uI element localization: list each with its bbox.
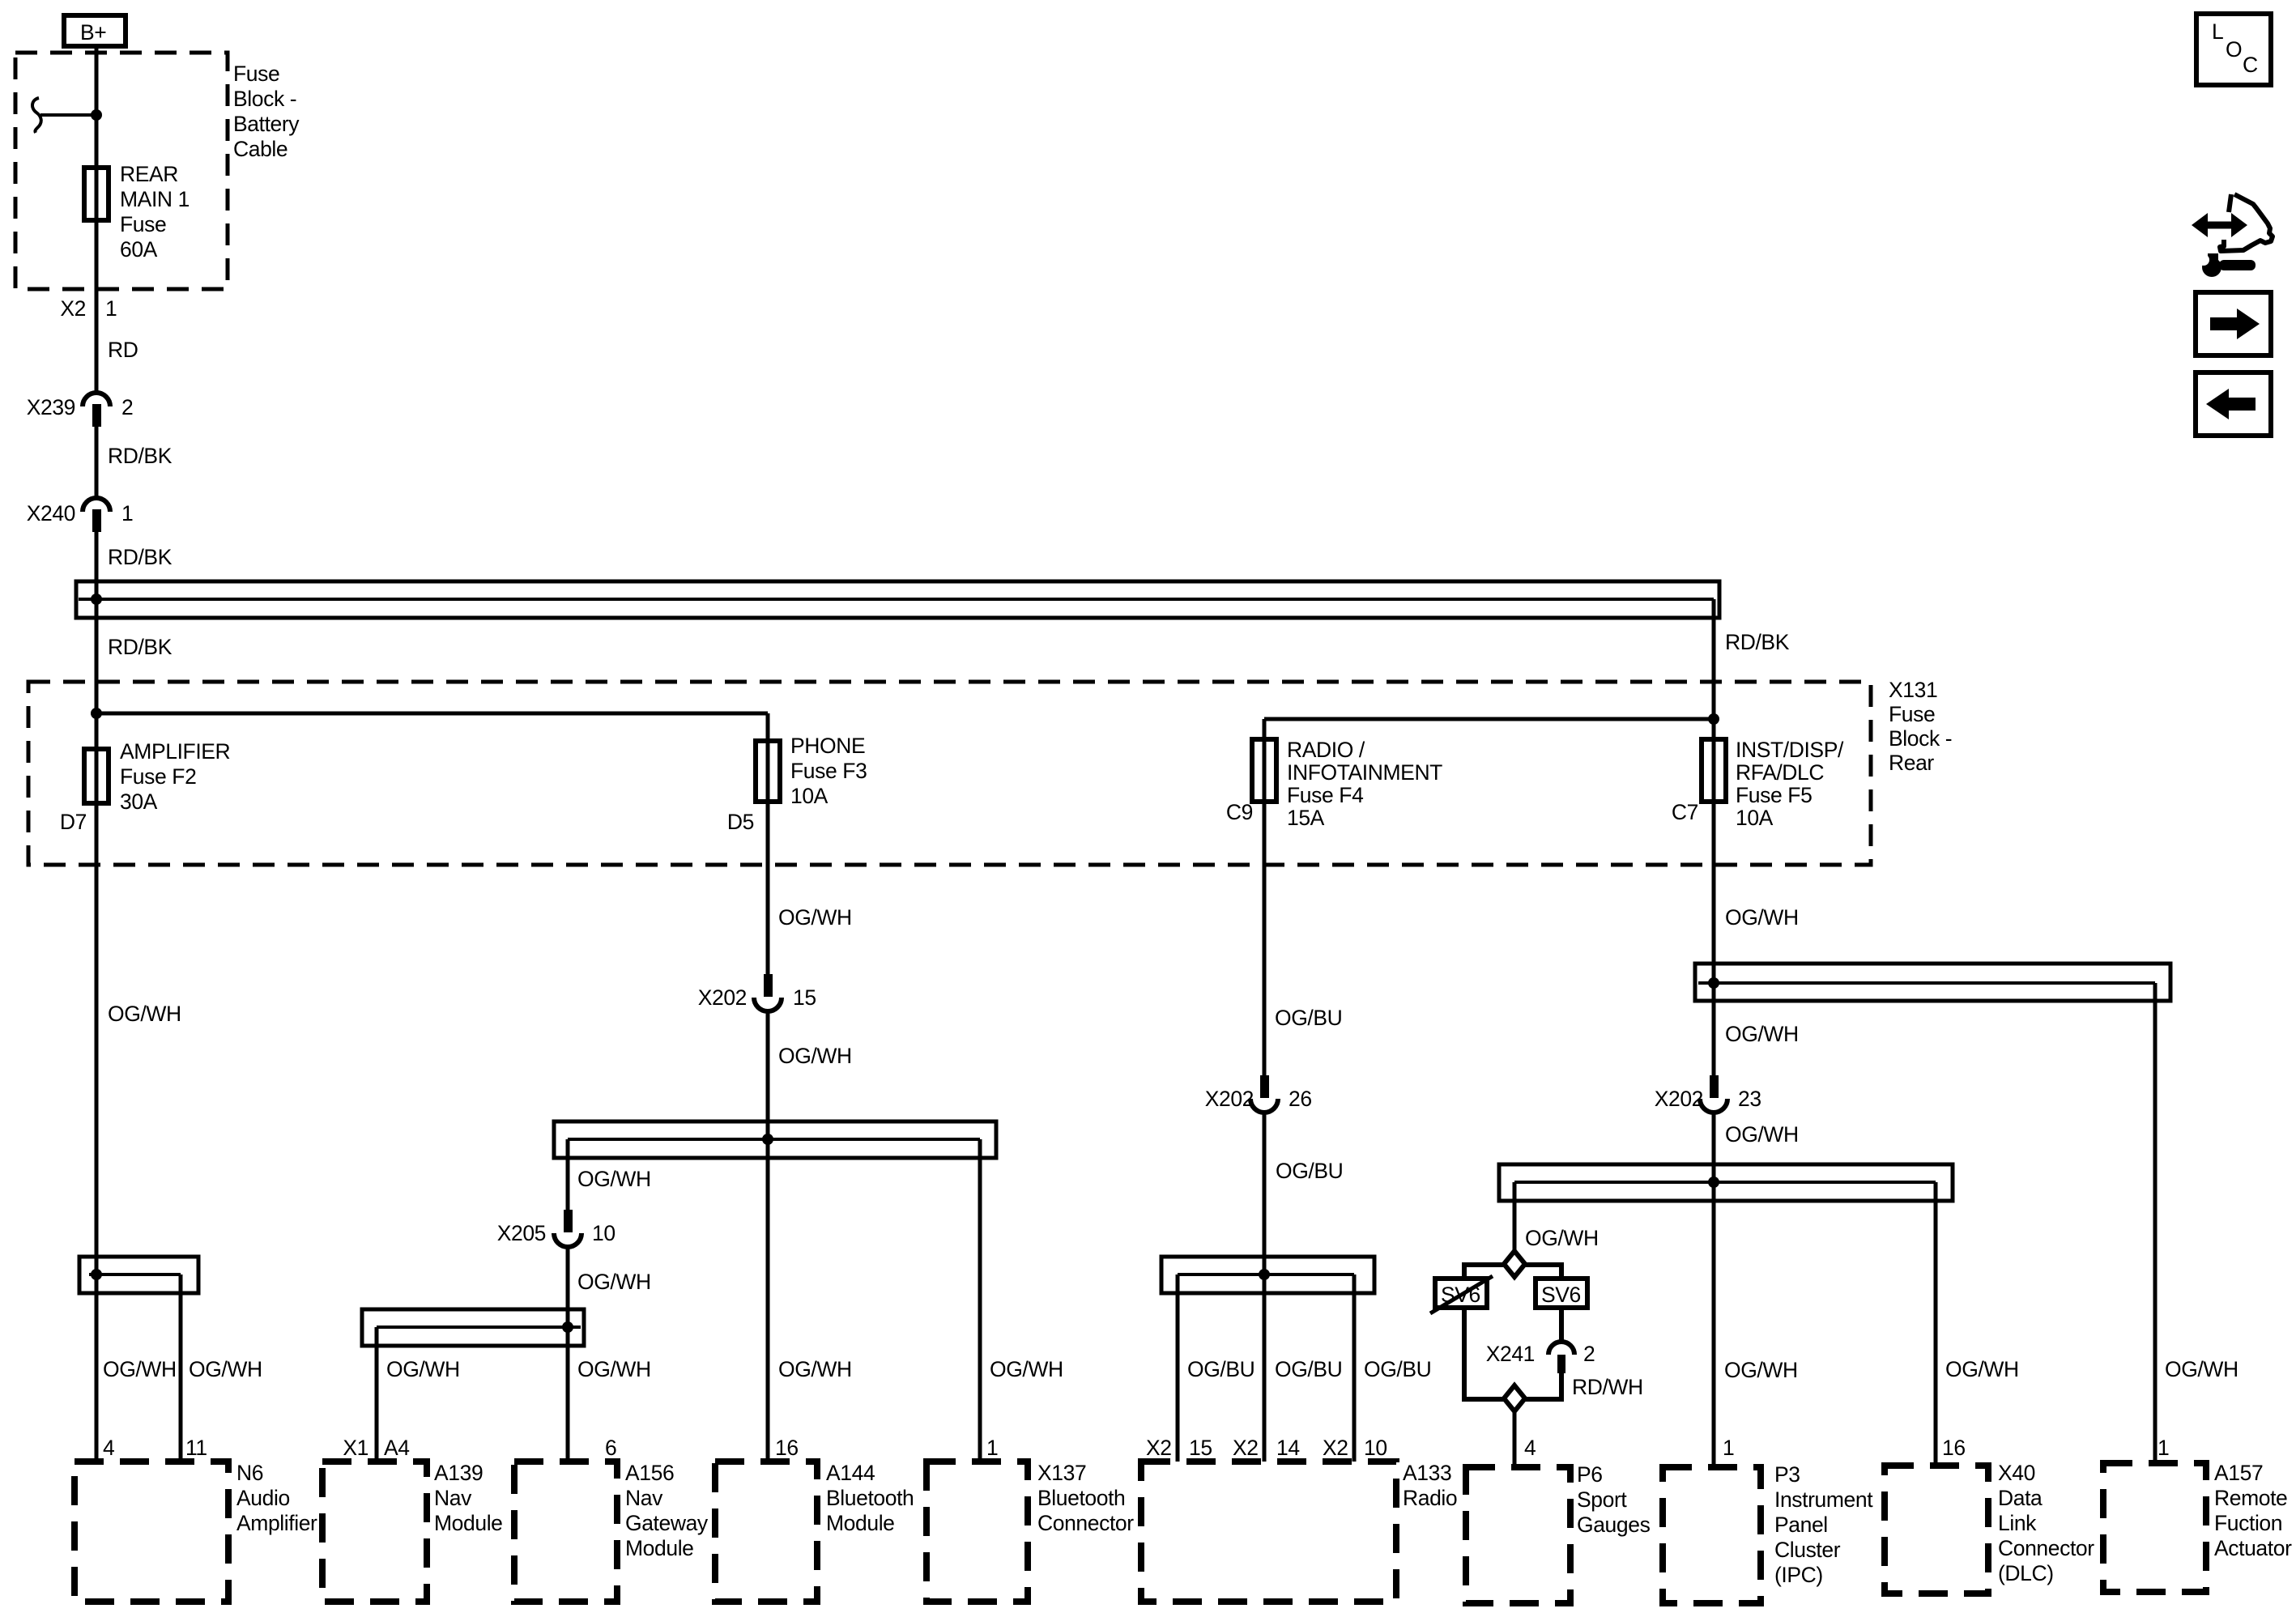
svg-text:4: 4: [1524, 1436, 1536, 1460]
svg-text:X2: X2: [60, 296, 86, 321]
svg-text:OG/WH: OG/WH: [103, 1357, 177, 1381]
svg-text:(DLC): (DLC): [1998, 1561, 2054, 1585]
svg-text:Fuction: Fuction: [2214, 1511, 2282, 1535]
svg-text:D7: D7: [60, 810, 87, 834]
svg-text:P6: P6: [1577, 1462, 1603, 1487]
svg-text:INST/DISP/: INST/DISP/: [1736, 738, 1844, 762]
svg-text:Gateway: Gateway: [625, 1511, 709, 1535]
svg-text:Audio: Audio: [236, 1486, 290, 1510]
svg-text:X137: X137: [1037, 1461, 1086, 1485]
svg-text:Fuse F4: Fuse F4: [1287, 783, 1363, 807]
svg-text:OG/WH: OG/WH: [577, 1167, 651, 1191]
svg-text:RD: RD: [108, 338, 138, 362]
svg-text:Block -: Block -: [1889, 726, 1952, 751]
svg-text:X2: X2: [1323, 1436, 1348, 1460]
svg-text:Module: Module: [625, 1536, 694, 1560]
svg-text:60A: 60A: [120, 237, 158, 262]
svg-text:OG/WH: OG/WH: [990, 1357, 1063, 1381]
svg-text:OG/WH: OG/WH: [1525, 1226, 1599, 1250]
svg-text:OG/WH: OG/WH: [1725, 1022, 1799, 1046]
svg-text:10: 10: [1364, 1436, 1387, 1460]
svg-text:X241: X241: [1486, 1342, 1535, 1366]
svg-text:(IPC): (IPC): [1774, 1563, 1823, 1587]
svg-text:MAIN 1: MAIN 1: [120, 187, 190, 211]
svg-text:OG/WH: OG/WH: [1724, 1358, 1798, 1382]
svg-text:OG/BU: OG/BU: [1187, 1357, 1254, 1381]
svg-text:X205: X205: [497, 1221, 546, 1245]
svg-text:Fuse F2: Fuse F2: [120, 764, 196, 789]
svg-text:2: 2: [1583, 1342, 1595, 1366]
svg-text:Radio: Radio: [1403, 1486, 1457, 1510]
svg-text:SV6: SV6: [1541, 1283, 1581, 1307]
svg-text:1: 1: [986, 1436, 998, 1460]
svg-text:Bluetooth: Bluetooth: [1037, 1486, 1125, 1510]
svg-text:X239: X239: [27, 395, 75, 419]
svg-text:OG/WH: OG/WH: [778, 1044, 852, 1068]
svg-text:Panel: Panel: [1774, 1513, 1828, 1537]
svg-text:OG/BU: OG/BU: [1364, 1357, 1431, 1381]
svg-text:10A: 10A: [790, 784, 829, 808]
svg-text:1: 1: [105, 296, 117, 321]
svg-text:OG/WH: OG/WH: [1945, 1357, 2019, 1381]
svg-text:16: 16: [775, 1436, 799, 1460]
svg-text:X131: X131: [1889, 678, 1937, 702]
svg-text:Rear: Rear: [1889, 751, 1934, 775]
svg-text:INFOTAINMENT: INFOTAINMENT: [1287, 760, 1442, 785]
svg-text:23: 23: [1738, 1087, 1761, 1111]
svg-text:RD/BK: RD/BK: [108, 635, 173, 659]
svg-text:15: 15: [793, 985, 816, 1010]
svg-text:Link: Link: [1998, 1511, 2037, 1535]
svg-text:X2: X2: [1233, 1436, 1259, 1460]
svg-text:Nav: Nav: [434, 1486, 472, 1510]
svg-text:Gauges: Gauges: [1577, 1513, 1651, 1537]
svg-text:A157: A157: [2214, 1461, 2263, 1485]
svg-text:1: 1: [1723, 1436, 1734, 1460]
svg-text:A133: A133: [1403, 1461, 1451, 1485]
svg-text:N6: N6: [236, 1461, 263, 1485]
svg-text:Amplifier: Amplifier: [236, 1511, 317, 1535]
svg-text:Cable: Cable: [233, 137, 288, 161]
svg-text:2: 2: [121, 395, 133, 419]
svg-text:O: O: [2226, 37, 2242, 62]
svg-text:RD/BK: RD/BK: [108, 545, 173, 569]
svg-text:A4: A4: [384, 1436, 410, 1460]
svg-text:P3: P3: [1774, 1462, 1800, 1487]
svg-text:6: 6: [605, 1436, 616, 1460]
svg-text:Fuse: Fuse: [233, 62, 279, 86]
svg-text:Module: Module: [826, 1511, 895, 1535]
svg-text:C7: C7: [1672, 800, 1698, 824]
svg-text:OG/BU: OG/BU: [1275, 1006, 1342, 1030]
svg-text:1: 1: [121, 501, 133, 526]
svg-text:Actuator: Actuator: [2214, 1536, 2292, 1560]
svg-text:Data: Data: [1998, 1486, 2043, 1510]
svg-text:Cluster: Cluster: [1774, 1538, 1841, 1562]
svg-text:L: L: [2212, 19, 2223, 44]
svg-text:Connector: Connector: [1998, 1536, 2094, 1560]
svg-text:Block -: Block -: [233, 87, 296, 111]
svg-text:X202: X202: [1205, 1087, 1254, 1111]
svg-text:OG/WH: OG/WH: [577, 1270, 651, 1294]
svg-text:A144: A144: [826, 1461, 875, 1485]
svg-text:4: 4: [103, 1436, 114, 1460]
svg-text:11: 11: [185, 1436, 207, 1460]
svg-text:X40: X40: [1998, 1461, 2035, 1485]
svg-text:OG/BU: OG/BU: [1276, 1159, 1343, 1183]
svg-text:OG/WH: OG/WH: [778, 1357, 852, 1381]
svg-text:OG/WH: OG/WH: [778, 905, 852, 930]
svg-text:Bluetooth: Bluetooth: [826, 1486, 914, 1510]
svg-text:C: C: [2243, 53, 2258, 77]
svg-text:Fuse: Fuse: [120, 212, 166, 236]
svg-text:Remote: Remote: [2214, 1486, 2287, 1510]
svg-text:REAR: REAR: [120, 162, 178, 186]
svg-text:Instrument: Instrument: [1774, 1487, 1873, 1512]
svg-text:Fuse: Fuse: [1889, 702, 1935, 726]
svg-text:B+: B+: [80, 20, 106, 45]
svg-text:OG/BU: OG/BU: [1275, 1357, 1342, 1381]
svg-text:OG/WH: OG/WH: [577, 1357, 651, 1381]
svg-text:OG/WH: OG/WH: [2165, 1357, 2238, 1381]
svg-text:RD/WH: RD/WH: [1572, 1375, 1643, 1399]
svg-text:RADIO /: RADIO /: [1287, 738, 1365, 762]
svg-text:AMPLIFIER: AMPLIFIER: [120, 739, 230, 764]
svg-text:A156: A156: [625, 1461, 674, 1485]
svg-text:Nav: Nav: [625, 1486, 663, 1510]
svg-text:Fuse F3: Fuse F3: [790, 759, 867, 783]
svg-text:X1: X1: [343, 1436, 368, 1460]
svg-text:26: 26: [1289, 1087, 1312, 1111]
svg-text:C9: C9: [1226, 800, 1253, 824]
svg-text:15: 15: [1189, 1436, 1212, 1460]
svg-text:RFA/DLC: RFA/DLC: [1736, 760, 1824, 785]
svg-text:Battery: Battery: [233, 112, 300, 136]
svg-text:15A: 15A: [1287, 806, 1325, 830]
svg-text:10A: 10A: [1736, 806, 1774, 830]
svg-text:1: 1: [2158, 1436, 2169, 1460]
svg-text:X240: X240: [27, 501, 75, 526]
svg-text:14: 14: [1276, 1436, 1300, 1460]
svg-text:A139: A139: [434, 1461, 483, 1485]
svg-text:RD/BK: RD/BK: [1725, 630, 1790, 654]
svg-text:Connector: Connector: [1037, 1511, 1134, 1535]
svg-text:D5: D5: [727, 810, 754, 834]
svg-text:10: 10: [592, 1221, 616, 1245]
svg-text:Module: Module: [434, 1511, 503, 1535]
svg-text:X202: X202: [1655, 1087, 1703, 1111]
svg-text:Sport: Sport: [1577, 1487, 1627, 1512]
svg-text:X2: X2: [1146, 1436, 1172, 1460]
svg-text:Fuse F5: Fuse F5: [1736, 783, 1812, 807]
svg-text:OG/WH: OG/WH: [1725, 905, 1799, 930]
svg-text:RD/BK: RD/BK: [108, 444, 173, 468]
svg-text:OG/WH: OG/WH: [189, 1357, 262, 1381]
svg-text:OG/WH: OG/WH: [386, 1357, 460, 1381]
svg-text:OG/WH: OG/WH: [108, 1002, 181, 1026]
svg-text:X202: X202: [698, 985, 747, 1010]
svg-text:OG/WH: OG/WH: [1725, 1122, 1799, 1147]
svg-text:30A: 30A: [120, 789, 158, 814]
svg-text:PHONE: PHONE: [790, 734, 865, 758]
svg-text:16: 16: [1942, 1436, 1966, 1460]
